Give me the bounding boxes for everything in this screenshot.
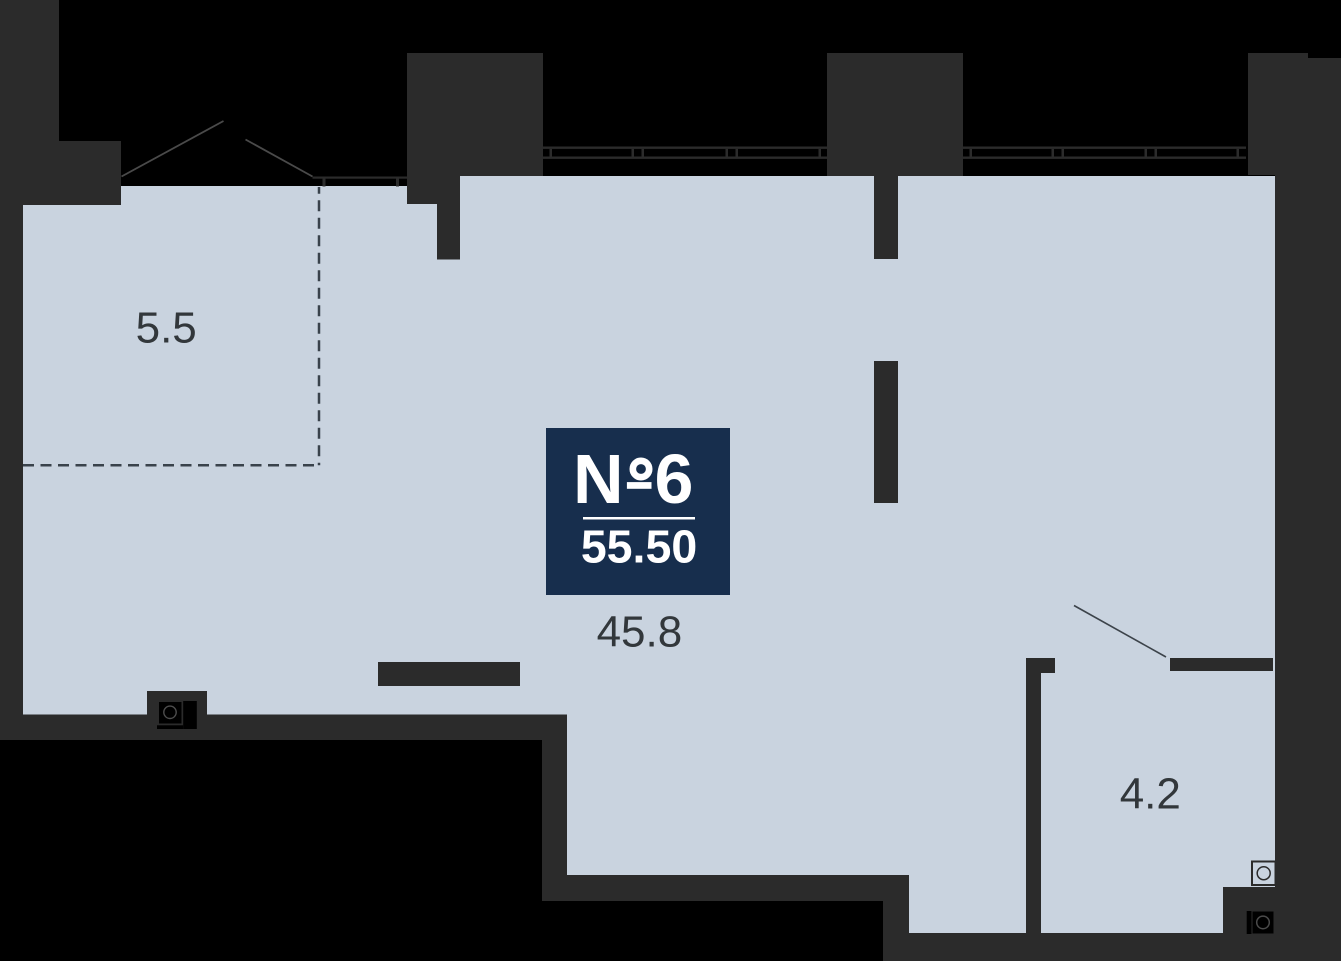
svg-text:N: N [573, 440, 624, 518]
svg-text:55.50: 55.50 [581, 521, 697, 573]
svg-text:5.5: 5.5 [136, 303, 197, 352]
svg-text:45.8: 45.8 [597, 607, 683, 656]
svg-text:6: 6 [655, 440, 694, 518]
svg-text:4.2: 4.2 [1120, 770, 1181, 819]
